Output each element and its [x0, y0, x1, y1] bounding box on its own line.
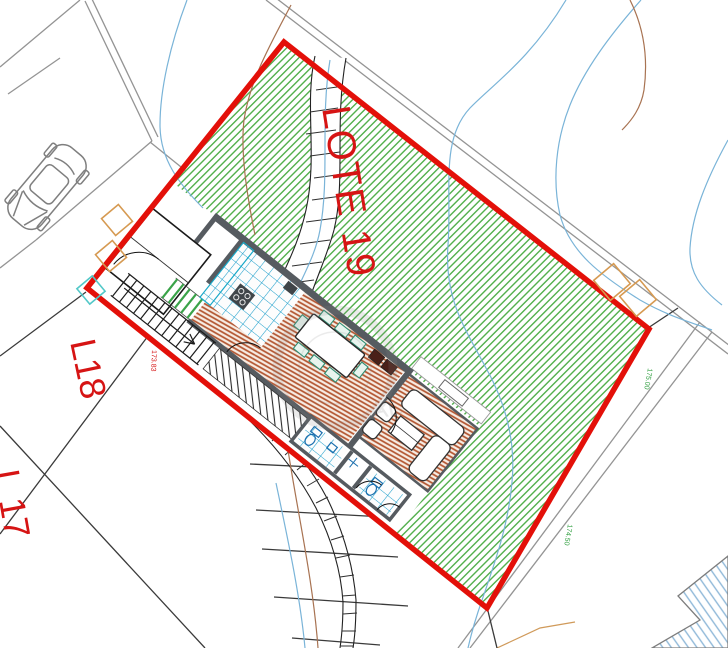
boundary-extension-south — [487, 607, 497, 648]
site-plan-drawing: AL LOTE 19 L18 L 17 173.83 175.00 174.50 — [0, 0, 728, 648]
neighbor-building — [652, 556, 728, 648]
site-plan-canvas: AL LOTE 19 L18 L 17 173.83 175.00 174.50 — [0, 0, 728, 648]
boundary-extension-east — [648, 308, 678, 328]
car-icon — [0, 136, 95, 237]
neighbor-lot-left-label: L18 — [62, 335, 115, 402]
elevation-mark-red: 173.83 — [149, 350, 157, 372]
elevation-mark-green-b: 174.50 — [562, 524, 573, 546]
tan-ground-line — [497, 622, 575, 648]
marker-orange — [102, 205, 133, 236]
neighbor-lot-bottom-label: L 17 — [0, 466, 38, 541]
